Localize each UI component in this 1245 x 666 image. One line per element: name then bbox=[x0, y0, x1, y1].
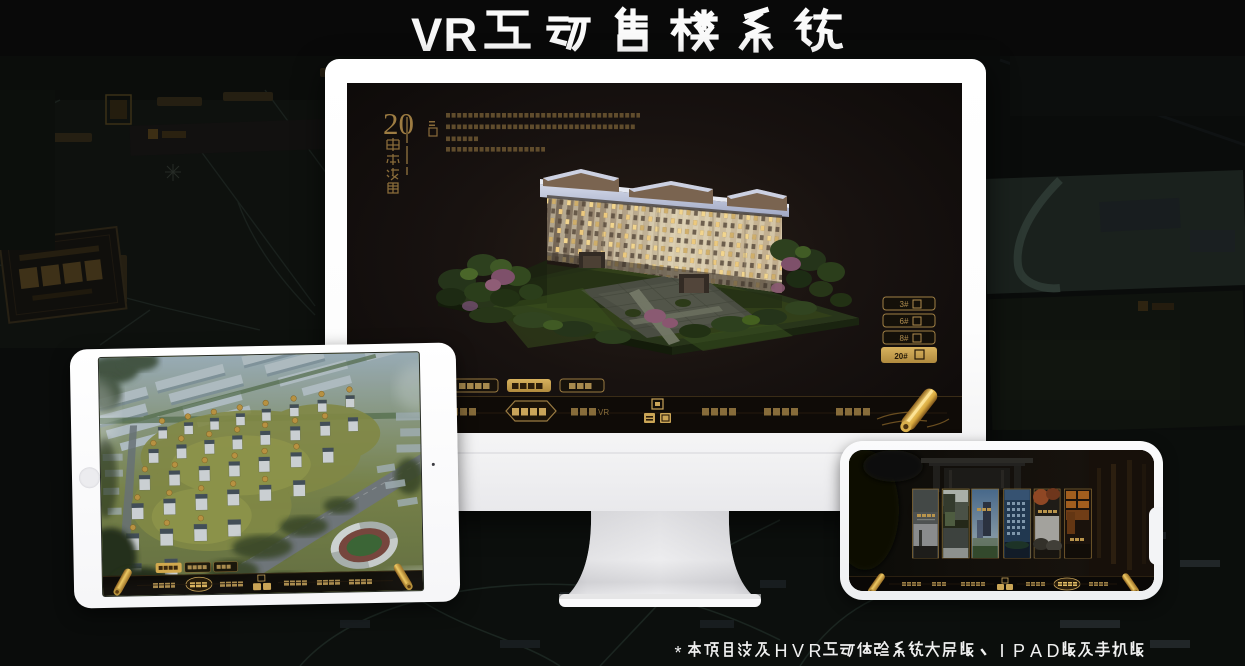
svg-text:3#: 3# bbox=[900, 300, 909, 309]
svg-text:VR: VR bbox=[598, 408, 609, 417]
svg-text:H: H bbox=[775, 641, 788, 661]
svg-text:R: R bbox=[809, 641, 822, 661]
svg-text:6#: 6# bbox=[900, 317, 909, 326]
svg-text:VR: VR bbox=[411, 8, 478, 58]
svg-text:D: D bbox=[1047, 641, 1060, 661]
svg-text:20#: 20# bbox=[894, 352, 908, 361]
svg-text:*: * bbox=[674, 643, 681, 663]
svg-text:A: A bbox=[1030, 641, 1042, 661]
svg-text:P: P bbox=[1013, 641, 1025, 661]
svg-text:8#: 8# bbox=[900, 334, 909, 343]
svg-text:20: 20 bbox=[383, 106, 414, 141]
svg-text:V: V bbox=[792, 641, 804, 661]
svg-text:I: I bbox=[999, 641, 1004, 661]
